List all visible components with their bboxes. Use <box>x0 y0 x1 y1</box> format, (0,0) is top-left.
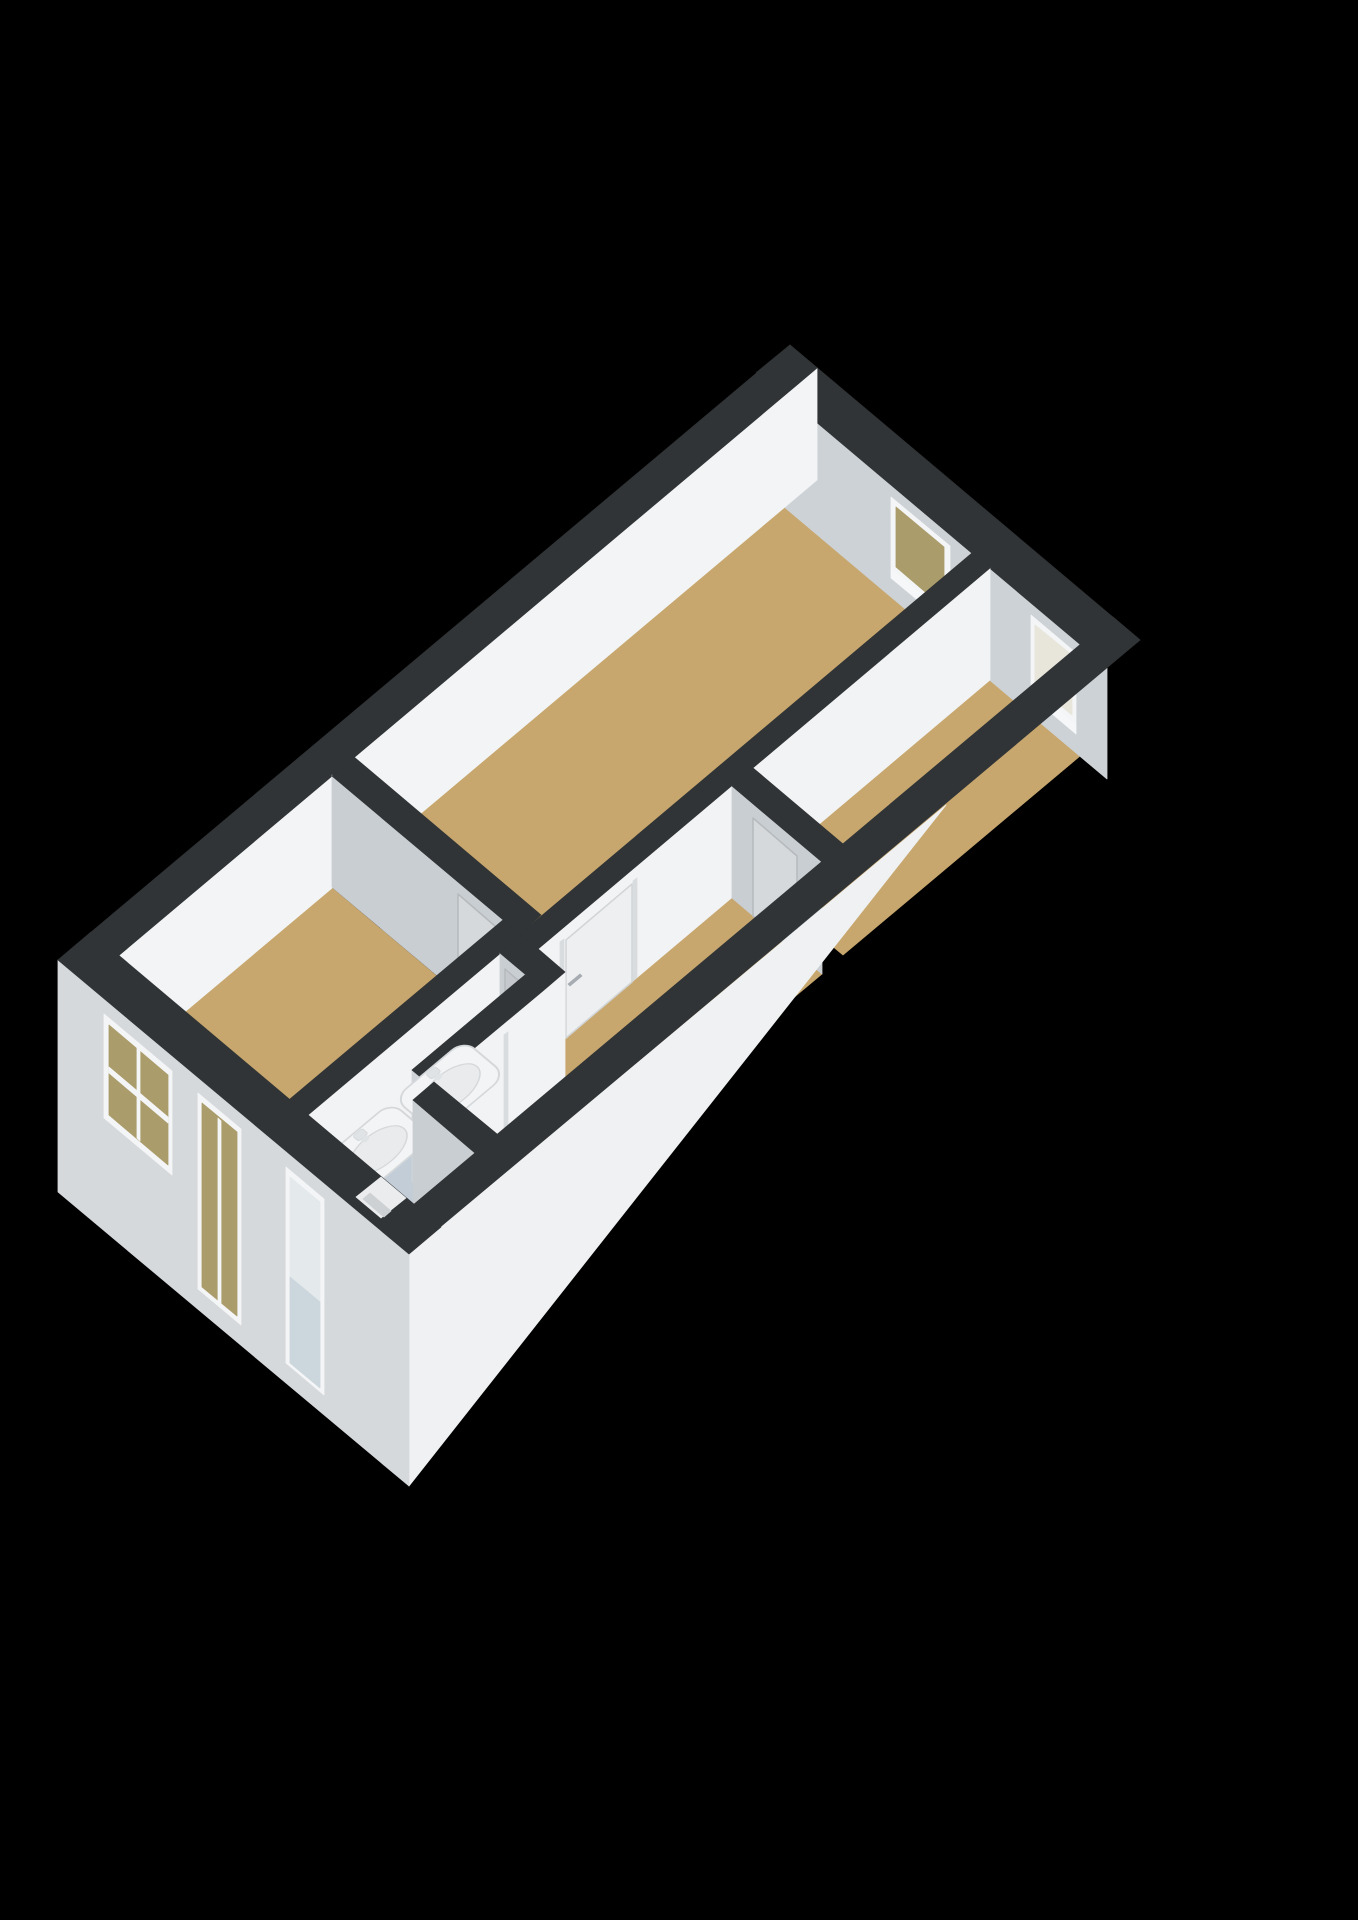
floorplan-svg <box>0 0 1358 1920</box>
door-1-jamb-left <box>633 878 637 981</box>
floorplan-3d-viewport <box>0 0 1358 1920</box>
window-4-mullion <box>218 1118 221 1305</box>
nook-wall-jamb-a <box>504 1032 508 1135</box>
